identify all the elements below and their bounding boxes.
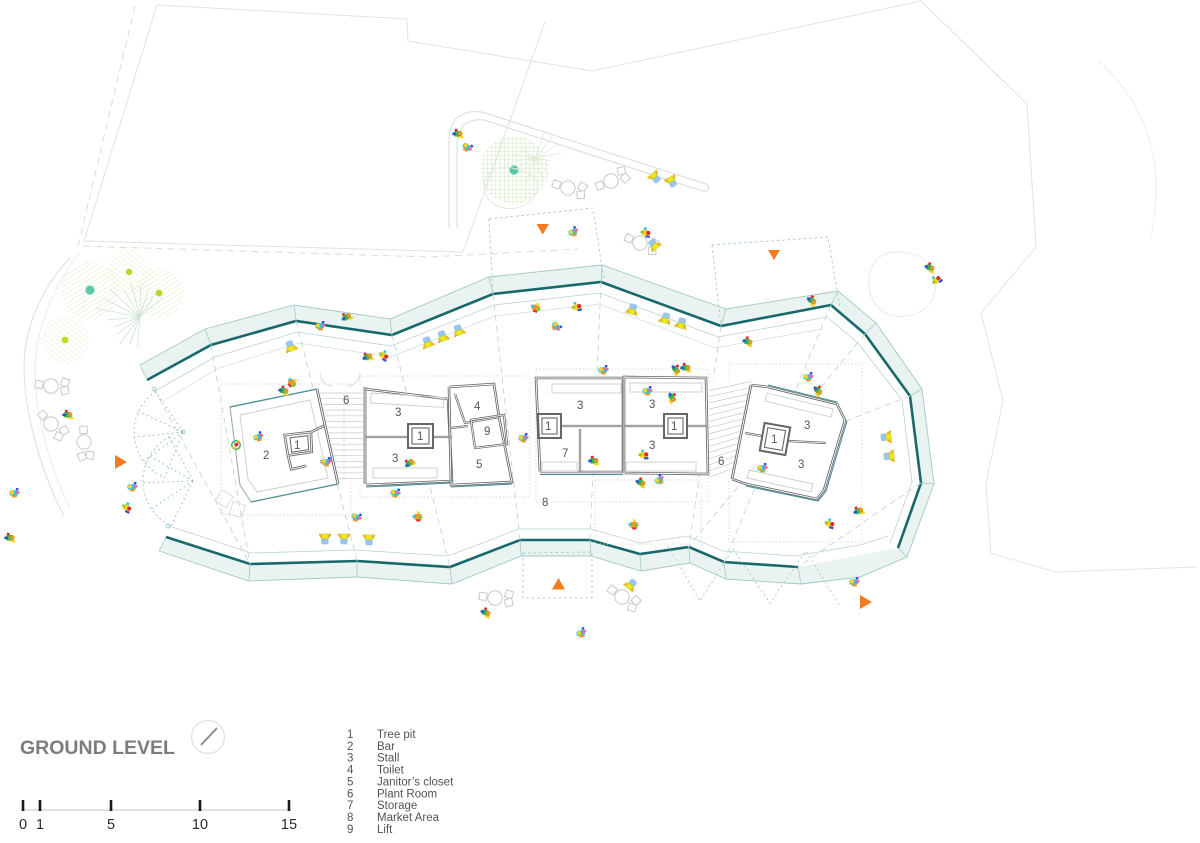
svg-text:4: 4: [347, 765, 354, 777]
svg-text:Toilet: Toilet: [377, 765, 405, 777]
svg-text:10: 10: [192, 817, 208, 833]
svg-text:3: 3: [347, 753, 353, 765]
svg-text:3: 3: [577, 400, 583, 412]
svg-text:1: 1: [671, 421, 677, 433]
svg-text:7: 7: [562, 448, 568, 460]
svg-text:8: 8: [542, 497, 548, 509]
svg-text:3: 3: [798, 459, 804, 471]
svg-text:6: 6: [343, 395, 349, 407]
svg-text:2: 2: [347, 741, 353, 753]
svg-text:9: 9: [484, 426, 490, 438]
svg-text:8: 8: [347, 812, 353, 824]
svg-text:Janitor’s closet: Janitor’s closet: [377, 776, 454, 788]
svg-text:9: 9: [347, 824, 353, 836]
svg-text:5: 5: [107, 817, 115, 833]
svg-text:Tree pit: Tree pit: [377, 729, 416, 741]
svg-text:5: 5: [347, 776, 353, 788]
svg-text:Market Area: Market Area: [377, 812, 440, 824]
svg-text:7: 7: [347, 800, 353, 812]
svg-text:Stall: Stall: [377, 753, 399, 765]
svg-text:3: 3: [395, 407, 401, 419]
svg-text:4: 4: [474, 401, 481, 413]
svg-text:1: 1: [294, 440, 300, 452]
svg-text:1: 1: [36, 817, 44, 833]
svg-text:2: 2: [263, 450, 269, 462]
svg-text:3: 3: [649, 440, 655, 452]
svg-text:1: 1: [771, 434, 777, 446]
svg-text:5: 5: [476, 459, 482, 471]
svg-text:Plant Room: Plant Room: [377, 788, 437, 800]
svg-text:Bar: Bar: [377, 741, 395, 753]
svg-text:3: 3: [392, 453, 398, 465]
svg-text:3: 3: [804, 420, 810, 432]
svg-text:Lift: Lift: [377, 824, 393, 836]
svg-text:1: 1: [545, 421, 551, 433]
svg-text:15: 15: [281, 817, 297, 833]
svg-text:1: 1: [347, 729, 353, 741]
svg-text:6: 6: [718, 456, 724, 468]
svg-text:GROUND LEVEL: GROUND LEVEL: [20, 737, 175, 759]
svg-text:0: 0: [19, 817, 27, 833]
svg-text:Storage: Storage: [377, 800, 417, 812]
svg-text:1: 1: [417, 431, 423, 443]
svg-text:6: 6: [347, 788, 353, 800]
svg-text:3: 3: [649, 399, 655, 411]
